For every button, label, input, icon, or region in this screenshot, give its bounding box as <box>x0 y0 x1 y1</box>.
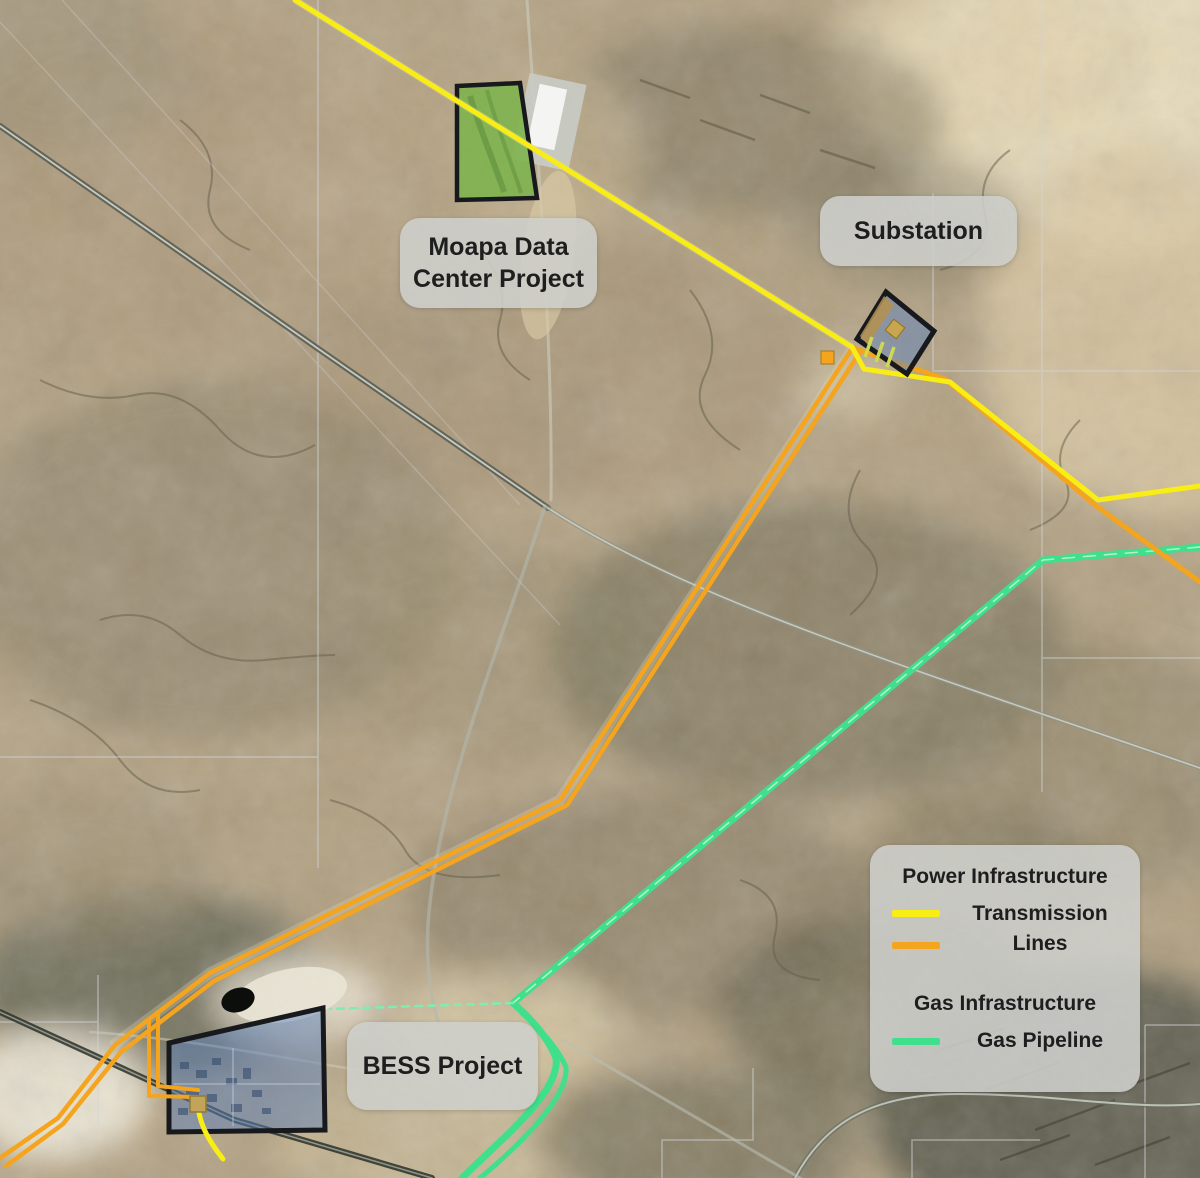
legend-swatch-gas-pipeline <box>892 1038 940 1045</box>
legend-gas-heading: Gas Infrastructure <box>884 992 1126 1016</box>
bess-project-label-text: BESS Project <box>363 1050 523 1083</box>
legend-swatch-transmission-yellow <box>892 910 940 917</box>
satellite-map: Moapa Data Center Project Substation BES… <box>0 0 1200 1178</box>
substation-label: Substation <box>820 196 1017 266</box>
bess-equipment-square <box>190 1096 206 1112</box>
legend-swatch-transmission-orange <box>892 942 940 949</box>
gas-swatches <box>892 1038 954 1045</box>
moapa-project-label: Moapa Data Center Project <box>400 218 597 308</box>
substation-marker-square <box>821 351 834 364</box>
bess-project-label: BESS Project <box>347 1022 538 1110</box>
legend-power-heading: Power Infrastructure <box>884 865 1126 889</box>
legend-row-gas: Gas Pipeline <box>884 1026 1126 1056</box>
transmission-swatches <box>892 910 954 949</box>
legend-gas-pipeline-label: Gas Pipeline <box>954 1026 1126 1056</box>
legend-row-transmission: Transmission Lines <box>884 899 1126 960</box>
substation-label-text: Substation <box>854 215 983 248</box>
moapa-project-label-text: Moapa Data Center Project <box>406 231 591 296</box>
legend-transmission-label: Transmission Lines <box>954 899 1126 960</box>
map-legend: Power Infrastructure Transmission Lines … <box>870 845 1140 1092</box>
